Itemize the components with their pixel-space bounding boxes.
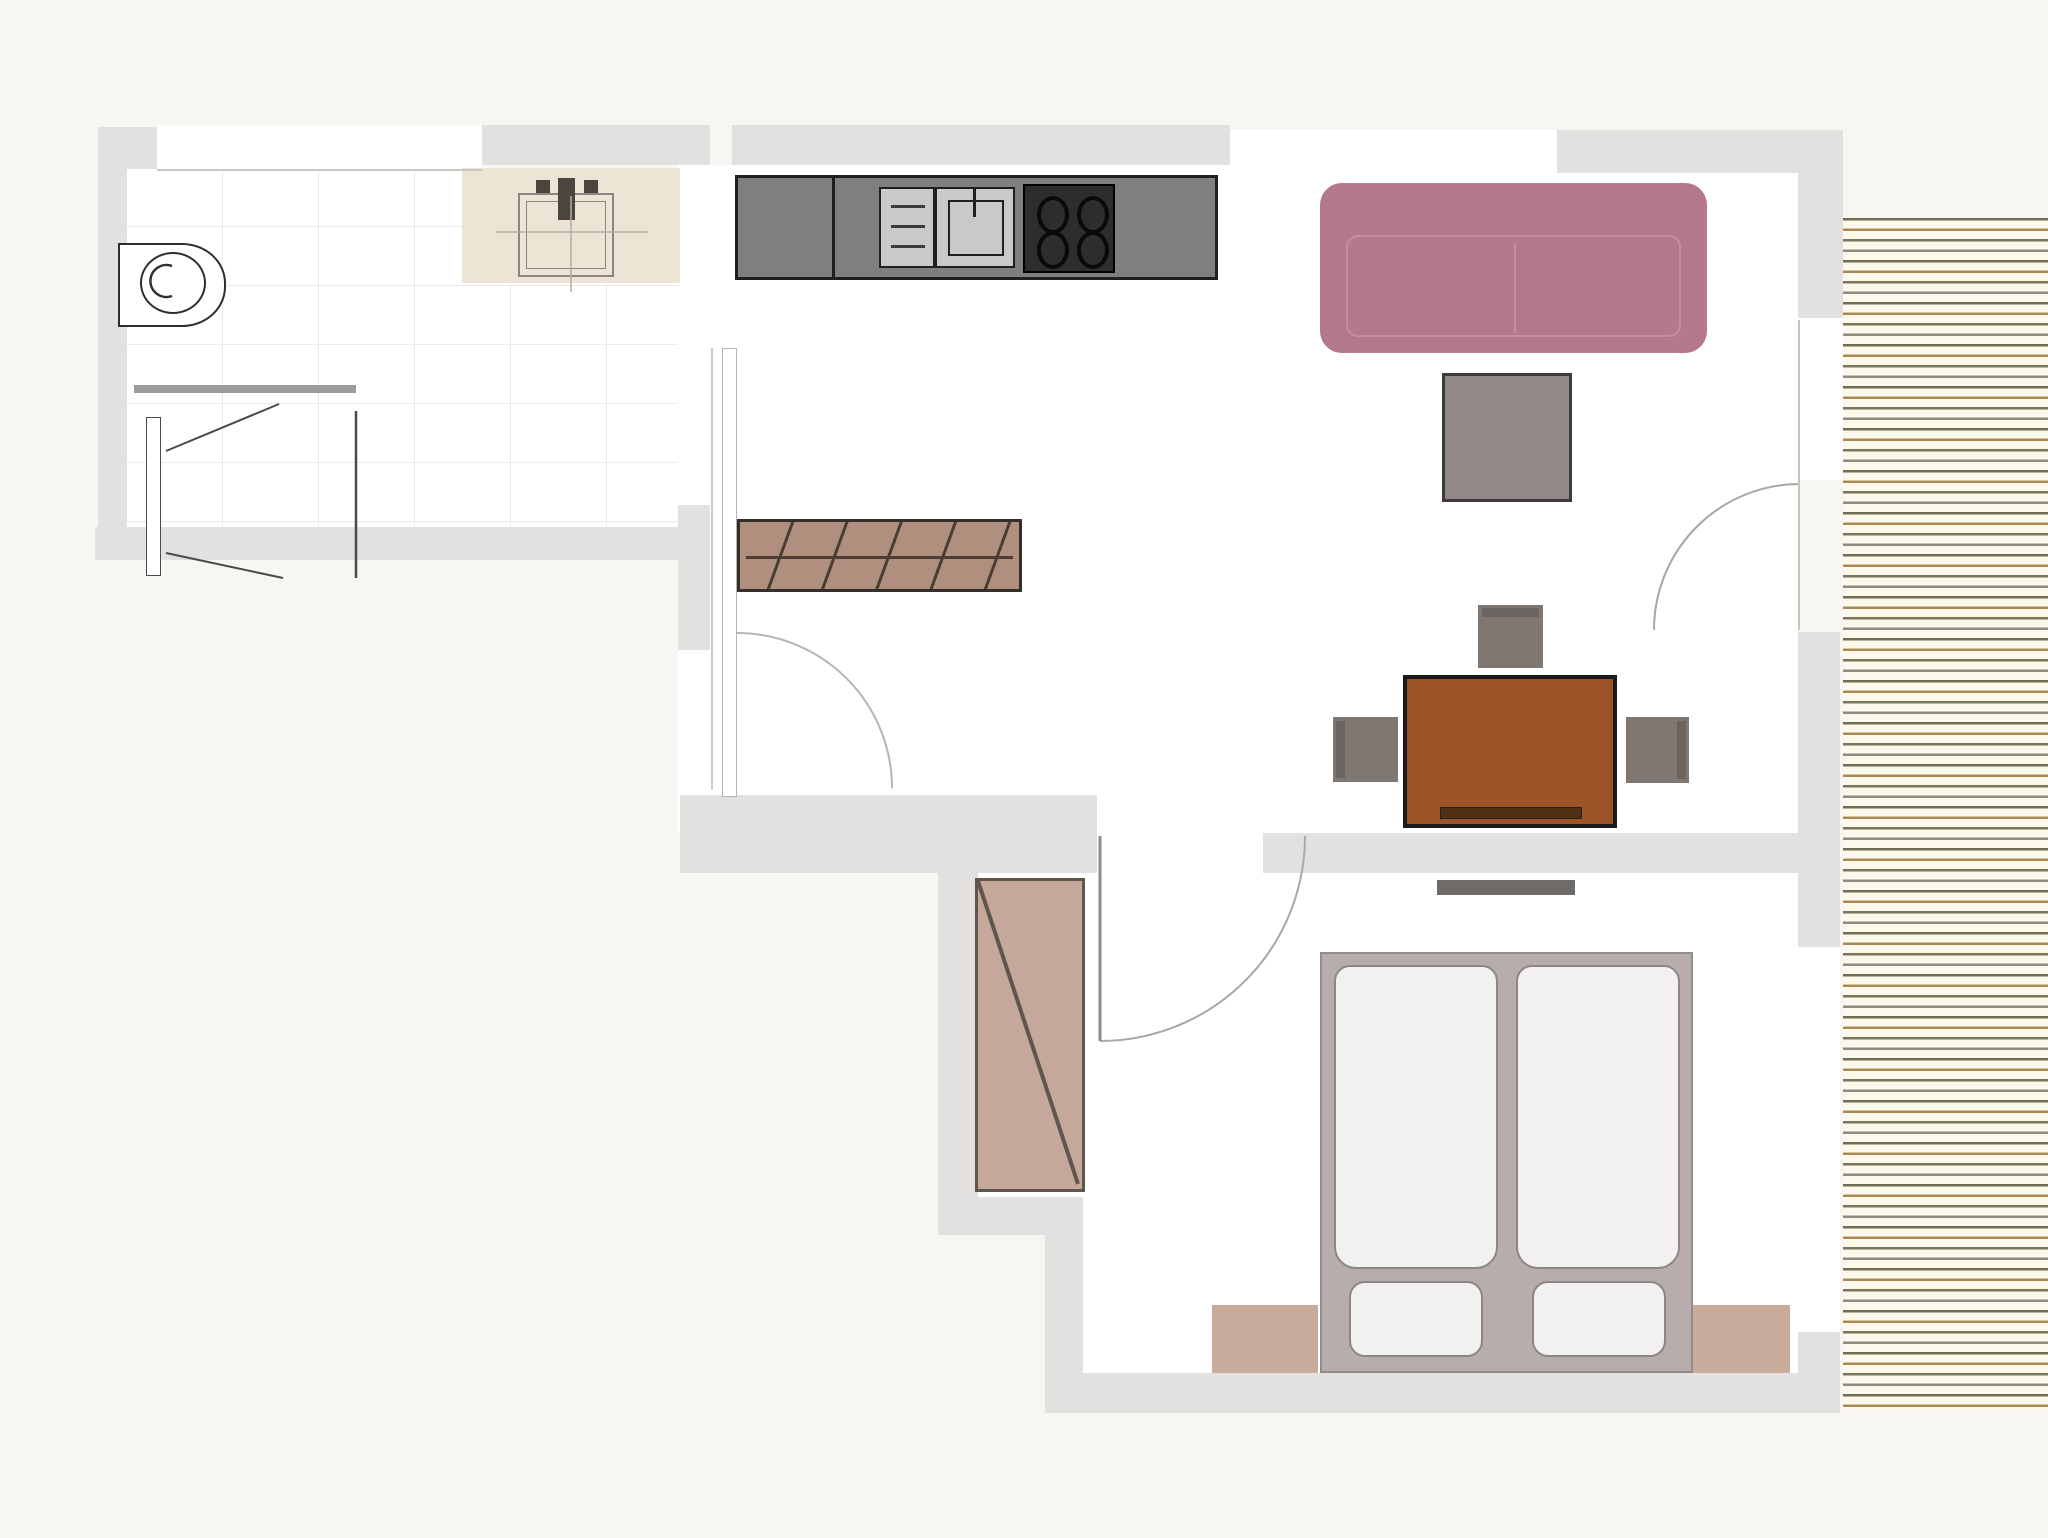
entry-door-leaf (722, 348, 737, 797)
wall-divider-right (1263, 833, 1798, 873)
dining-table (1403, 675, 1617, 828)
bathroom-vanity (462, 168, 680, 283)
mattress-right (1516, 965, 1680, 1269)
kitchen-faucet (973, 189, 976, 217)
wall-right-mid (1798, 632, 1840, 947)
faucet-handle-right (584, 180, 598, 193)
sofa-cushion-divider (1514, 243, 1516, 333)
wall-right-upper (1798, 173, 1843, 318)
nightstand-left (1212, 1305, 1318, 1373)
burner (1077, 196, 1109, 234)
floor-plan (0, 0, 2048, 1538)
burner (1077, 231, 1109, 269)
kitchen-sink-basin (948, 200, 1004, 256)
toilet (118, 243, 226, 327)
coat-rack-sideboard (737, 519, 1022, 592)
burner (1037, 196, 1069, 234)
sofa (1320, 183, 1707, 353)
faucet-spout (558, 178, 575, 220)
drawer-line (891, 225, 925, 228)
table-bench (1440, 807, 1582, 819)
wall-bathroom-bottom (95, 527, 710, 560)
wall-bathroom-right-stub (678, 505, 710, 650)
drawer-line (891, 205, 925, 208)
faucet-handle-left (536, 180, 550, 193)
bedroom-window-band (1798, 947, 1840, 1332)
cooktop (1023, 184, 1115, 273)
kitchen-counter (735, 175, 1218, 280)
wardrobe (975, 878, 1085, 1192)
wall-bedroom-bottom (1045, 1373, 1838, 1413)
burner (1037, 231, 1069, 269)
chair-right (1626, 717, 1689, 783)
wall-top-left-corner (98, 127, 157, 169)
wall-bathroom-top (482, 125, 710, 165)
radiator (1437, 880, 1575, 895)
drawer-line (891, 245, 925, 248)
wall-living-top (1557, 130, 1843, 173)
living-window-band (1230, 130, 1557, 173)
chair-left (1333, 717, 1398, 782)
wall-step-horizontal (938, 1197, 1083, 1235)
wall-bedroom-left (938, 873, 978, 1235)
kitchen-sink-unit (935, 187, 1015, 268)
shower-partition (134, 385, 356, 393)
chair-top (1478, 605, 1543, 668)
double-bed (1320, 952, 1693, 1373)
dishwasher (879, 187, 935, 268)
bedroom-door-gap (1097, 795, 1263, 873)
nightstand-right (1693, 1305, 1790, 1373)
mattress-left (1334, 965, 1498, 1269)
balcony-decking (1843, 218, 2048, 1410)
wall-step-vertical (1045, 1235, 1083, 1375)
bathroom-window-band (157, 125, 482, 169)
wall-kitchen-top (732, 125, 1230, 165)
pillow-right (1532, 1281, 1666, 1357)
wall-hall-divider-left (680, 795, 1097, 873)
wall-bathroom-left (98, 168, 127, 560)
counter-divider (832, 178, 835, 277)
coffee-table (1442, 373, 1572, 502)
pillow-left (1349, 1281, 1483, 1357)
balcony-door-window-band (1798, 318, 1843, 480)
shower-glass-panel (146, 417, 161, 576)
toilet-bowl (140, 252, 206, 314)
